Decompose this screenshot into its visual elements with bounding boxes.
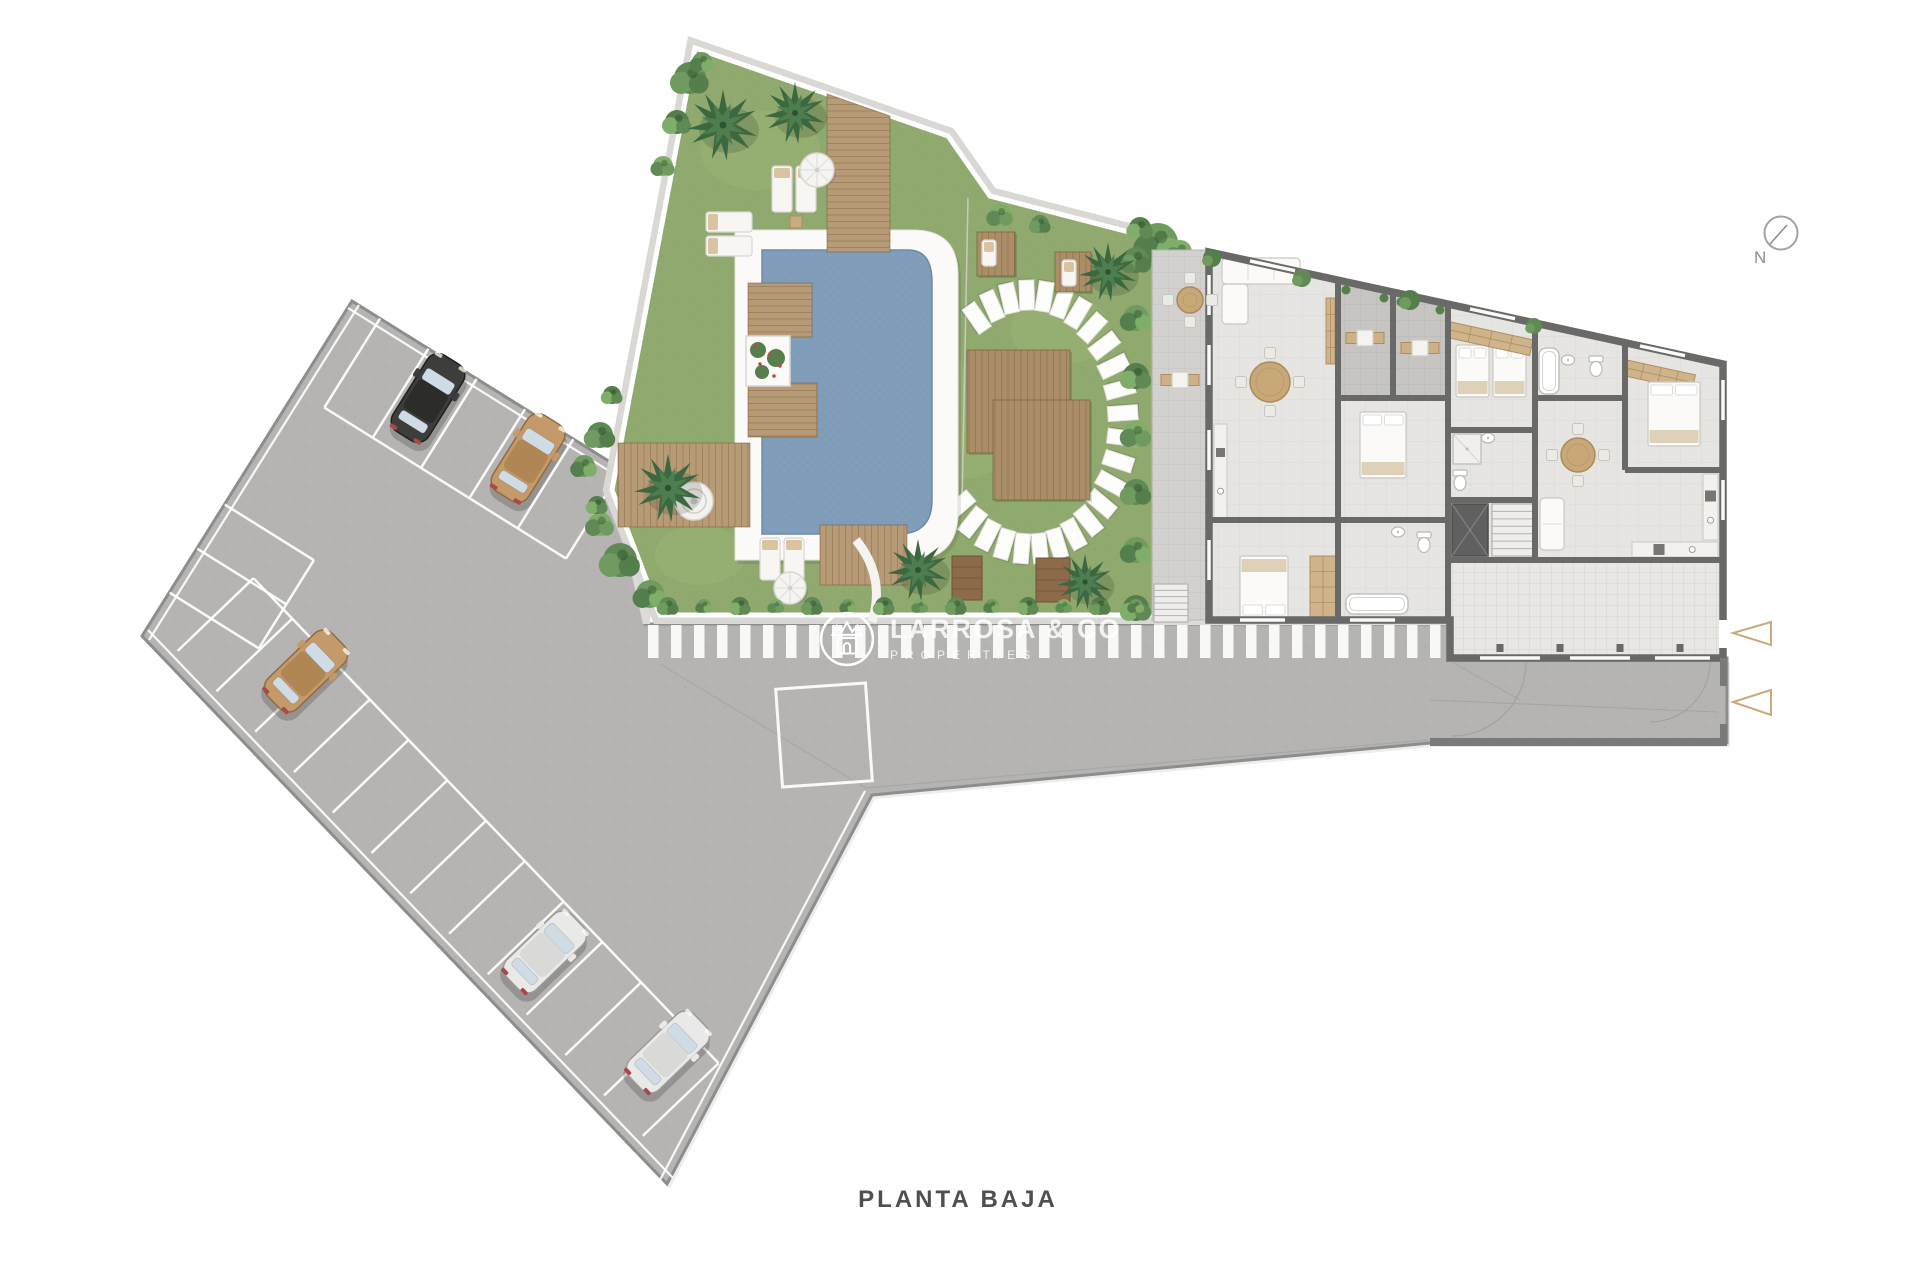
palm-trunk — [1105, 269, 1111, 275]
bush-shade — [1134, 368, 1142, 376]
stepping-stone — [1017, 278, 1035, 310]
side-table — [790, 216, 802, 228]
chair — [1547, 450, 1558, 461]
chair — [1401, 343, 1412, 354]
bush-shade — [648, 585, 657, 594]
crosswalk-stripe — [901, 625, 912, 658]
table-top — [1177, 287, 1203, 313]
bush-shade — [847, 602, 851, 606]
kitchen-counter — [1632, 542, 1718, 557]
crosswalk-stripe — [1338, 625, 1349, 658]
palm-trunk — [1082, 579, 1087, 584]
bush-blob — [1525, 324, 1535, 334]
crosswalk-stripe — [924, 625, 935, 658]
palm-trunk — [915, 567, 921, 573]
bush-shade — [661, 160, 667, 166]
bed — [1240, 556, 1288, 618]
stepping-stone — [1013, 533, 1032, 566]
crosswalk-stripe — [832, 625, 843, 658]
shower-drain — [1466, 448, 1469, 451]
bush-blob — [1292, 275, 1303, 286]
deck-pool-left-planks — [748, 283, 812, 337]
bush-shade — [991, 602, 995, 606]
chair — [1294, 377, 1305, 388]
chair — [1373, 333, 1384, 344]
crosswalk-stripe — [786, 625, 797, 658]
planter-flower — [778, 364, 782, 368]
kitchen-counter — [1703, 474, 1718, 540]
crosswalk-stripe — [763, 625, 774, 658]
grass-patch — [655, 525, 745, 585]
sink — [1562, 355, 1575, 365]
wood-platform-planks — [993, 400, 1090, 500]
bush — [1126, 217, 1153, 239]
crosswalk-stripe — [1292, 625, 1303, 658]
crosswalk-stripe — [740, 625, 751, 658]
elevator — [1452, 504, 1488, 556]
crosswalk-stripe — [1269, 625, 1280, 658]
stone — [1013, 533, 1031, 564]
toilet-bowl — [1454, 476, 1466, 491]
toilet — [1453, 470, 1467, 491]
planter-plant — [767, 349, 785, 367]
bathtub — [1346, 594, 1408, 614]
planter-flower — [754, 344, 758, 348]
garden-layer — [570, 48, 1194, 622]
driveway-right-wall — [1720, 658, 1727, 686]
chair — [1428, 343, 1439, 354]
bed-pillow — [1266, 605, 1286, 615]
umbrella-pole — [815, 168, 819, 172]
bed-throw — [1458, 381, 1488, 394]
planter-plant — [750, 342, 766, 358]
bed-pillow — [1385, 415, 1404, 425]
table-top — [1172, 372, 1188, 388]
bush-shade — [738, 600, 744, 606]
driveway-bottom-wall — [1430, 738, 1727, 746]
crosswalk-stripe — [717, 625, 728, 658]
bush-shade — [598, 427, 606, 435]
plan-title: PLANTA BAJA — [778, 1186, 1138, 1214]
bed-pillow — [1363, 415, 1382, 425]
chair — [1207, 295, 1218, 306]
crosswalk-stripe — [1108, 625, 1119, 658]
counter-top — [1214, 424, 1227, 520]
bed-pillow — [1474, 348, 1486, 358]
bush-blob — [1202, 255, 1213, 266]
crosswalk-stripe — [970, 625, 981, 658]
sink — [1482, 433, 1495, 443]
bush-shade — [582, 459, 589, 466]
bush-shade — [1026, 600, 1032, 606]
chair — [1236, 377, 1247, 388]
stone — [1107, 405, 1138, 422]
bush-shade — [675, 115, 683, 123]
sofa — [1540, 498, 1564, 550]
crosswalk-stripe — [1062, 625, 1073, 658]
crosswalk-stripe — [1361, 625, 1372, 658]
lounger-pillow — [1064, 262, 1074, 272]
sink-drain — [1397, 531, 1399, 533]
bush-shade — [954, 600, 960, 606]
planter-flower — [772, 374, 776, 378]
entry-direction-arrow — [1733, 690, 1771, 715]
garage-pillar — [1497, 644, 1504, 652]
chair — [1599, 450, 1610, 461]
appliance — [1654, 544, 1665, 555]
bush-shade — [1135, 602, 1139, 606]
planter-flower — [768, 352, 772, 356]
counter-top — [1632, 542, 1718, 557]
wardrobe — [1310, 556, 1336, 618]
deck-pool-left-planks — [748, 383, 817, 437]
palm-trunk — [792, 110, 798, 116]
counter-top — [1703, 474, 1718, 540]
bush-shade — [703, 602, 707, 606]
crosswalk-stripe — [694, 625, 705, 658]
site-plan — [0, 0, 1920, 1280]
toilet-bowl — [1590, 362, 1602, 377]
lounger-pillow — [708, 214, 718, 230]
sink-basin — [1689, 547, 1695, 553]
bush-shade — [598, 517, 606, 525]
driveway-right-wall — [1720, 724, 1727, 740]
crosswalk-stripe — [1200, 625, 1211, 658]
kitchen-counter — [1214, 424, 1227, 520]
sofa-return — [1222, 284, 1248, 324]
page: { "title": "PLANTA BAJA", "compass": { "… — [0, 0, 1920, 1280]
crosswalk-stripe — [878, 625, 889, 658]
crosswalk-stripe — [1177, 625, 1188, 658]
crosswalk-stripe — [855, 625, 866, 658]
crosswalk-stripe — [1039, 625, 1050, 658]
chair — [1163, 295, 1174, 306]
bush-shade — [919, 602, 923, 606]
bush-shade — [610, 389, 616, 395]
toilet — [1589, 356, 1603, 377]
bush-shade — [1134, 484, 1142, 492]
sink-basin — [1218, 488, 1224, 494]
palm-trunk — [720, 122, 727, 129]
bed — [1648, 382, 1700, 446]
annotations-layer — [1733, 622, 1771, 715]
garage-grid — [1452, 562, 1721, 656]
bush-shade — [1138, 221, 1145, 228]
crosswalk-stripe — [1430, 625, 1441, 658]
patio-table — [1346, 330, 1384, 346]
bed — [1360, 412, 1406, 478]
garage-pillar — [1617, 644, 1624, 652]
chair — [1573, 424, 1584, 435]
bush-shade — [1134, 542, 1142, 550]
bush-shade — [882, 600, 888, 606]
compass-north-indicator: N — [1752, 206, 1822, 280]
entrance-gap — [1719, 620, 1728, 648]
umbrella-pole — [788, 586, 792, 590]
bush-shade — [1134, 252, 1142, 260]
bush-shade — [1134, 426, 1142, 434]
bush-shade — [595, 499, 601, 505]
chair — [1185, 317, 1196, 328]
terrace-stairs — [1154, 584, 1188, 622]
chair — [1265, 406, 1276, 417]
bed-pillow — [1459, 348, 1471, 358]
crosswalk-stripe — [1384, 625, 1395, 658]
crosswalk-stripe — [648, 625, 659, 658]
crosswalk-stripe — [1154, 625, 1165, 658]
toilet — [1417, 532, 1431, 553]
crosswalk-stripe — [1131, 625, 1142, 658]
appliance — [1705, 491, 1716, 502]
compass-icon — [1752, 206, 1822, 280]
compass-north-label: N — [1754, 248, 1766, 268]
bush — [584, 422, 615, 448]
sink-basin — [1708, 517, 1714, 523]
planter-plant — [755, 365, 769, 379]
bed-throw — [1495, 381, 1525, 394]
bed-throw — [1362, 462, 1405, 475]
bed-throw — [1242, 559, 1287, 572]
chair — [1346, 333, 1357, 344]
deck-top-planks — [827, 94, 890, 252]
lounger-pillow — [786, 540, 802, 550]
bush-shade — [1063, 602, 1067, 606]
table-top — [1561, 438, 1595, 472]
bush-shade — [810, 600, 816, 606]
appliance — [1216, 448, 1225, 457]
bed — [1456, 345, 1489, 397]
chair — [1161, 375, 1172, 386]
crosswalk-stripe — [993, 625, 1004, 658]
table-top — [1357, 330, 1373, 346]
garage-pillar — [1557, 644, 1564, 652]
garage-pillar — [1677, 644, 1684, 652]
crosswalk-stripe — [947, 625, 958, 658]
bush-shade — [1134, 310, 1142, 318]
bed-throw — [1650, 430, 1699, 443]
crosswalk-stripe — [1246, 625, 1257, 658]
lounger-pillow — [984, 242, 994, 252]
patio-plant — [1342, 286, 1351, 295]
bush-shade — [775, 602, 779, 606]
bush-shade — [617, 549, 628, 560]
stepping-stone — [1107, 403, 1140, 422]
lounger-pillow — [774, 168, 790, 178]
sink-drain — [1567, 359, 1569, 361]
patio-table — [1401, 340, 1439, 356]
palm-trunk — [665, 485, 672, 492]
bathtub — [1539, 348, 1559, 394]
crosswalk-stripe — [1085, 625, 1096, 658]
staircase — [1492, 504, 1534, 556]
chair — [1185, 273, 1196, 284]
crosswalk-stripe — [1315, 625, 1326, 658]
bush-shade — [666, 600, 672, 606]
bush-shade — [700, 56, 706, 62]
patio-table — [1161, 372, 1199, 388]
bush-shade — [1155, 231, 1168, 244]
sink — [1392, 527, 1405, 537]
lounger-pillow — [762, 540, 778, 550]
bed-pillow — [1243, 605, 1263, 615]
table-top — [1412, 340, 1428, 356]
sink-drain — [1487, 437, 1489, 439]
shower — [1453, 434, 1481, 464]
bush — [601, 386, 623, 404]
toilet-bowl — [1418, 538, 1430, 553]
bed-pillow — [1676, 385, 1698, 395]
crosswalk-stripe — [809, 625, 820, 658]
patio-plant — [1380, 294, 1389, 303]
wardrobe — [1326, 298, 1335, 364]
crosswalk-stripe — [1016, 625, 1027, 658]
crosswalk-stripe — [1407, 625, 1418, 658]
bush-shade — [998, 208, 1005, 215]
crosswalk-stripe — [671, 625, 682, 658]
lounger-pillow — [708, 238, 718, 254]
entry-direction-arrow — [1733, 622, 1771, 645]
stone — [1019, 280, 1035, 311]
chair — [1573, 476, 1584, 487]
bush-shade — [1038, 218, 1044, 224]
bush-blob — [1399, 297, 1411, 309]
crosswalk-stripe — [1223, 625, 1234, 658]
bed-pillow — [1651, 385, 1673, 395]
chair — [1265, 348, 1276, 359]
planter-flower — [758, 362, 762, 366]
chair — [1188, 375, 1199, 386]
